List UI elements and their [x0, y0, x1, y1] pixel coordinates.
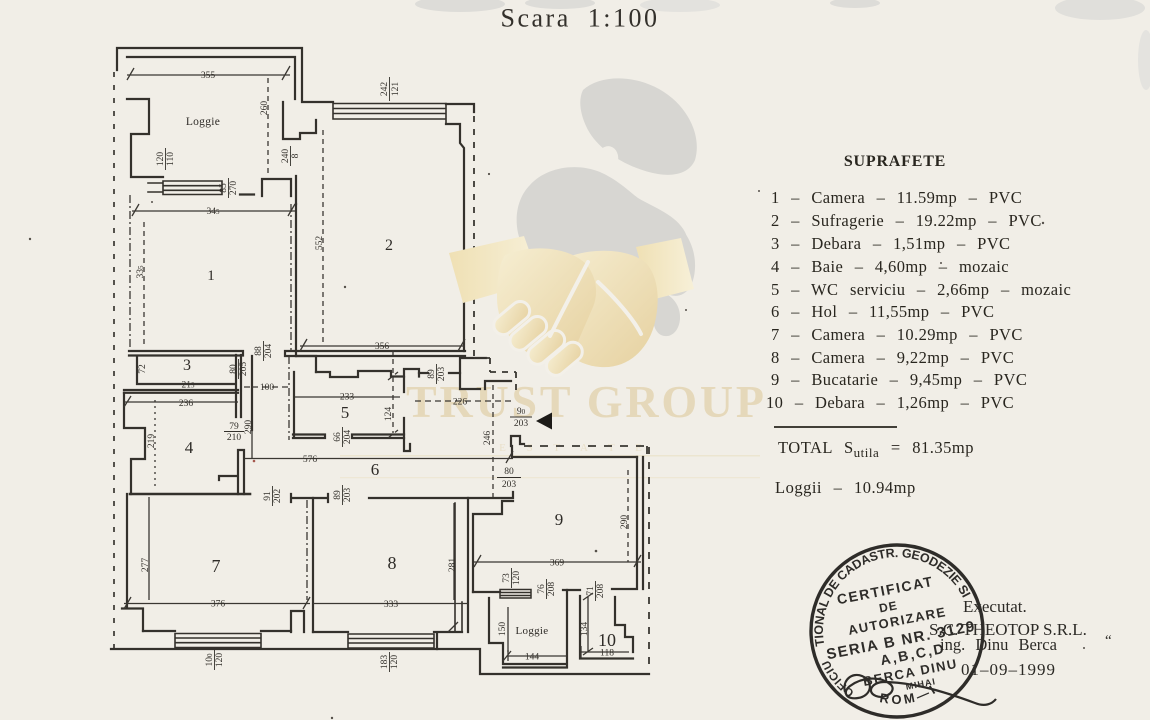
svg-text:89: 89: [333, 490, 343, 500]
svg-text:4 – Baie – 4,60mp – moza: 4 – Baie – 4,60mp – mozaic: [771, 257, 1009, 276]
svg-text:110: 110: [166, 152, 176, 166]
svg-text:80: 80: [229, 364, 239, 374]
svg-text:4: 4: [185, 438, 194, 457]
svg-text:85: 85: [219, 183, 229, 193]
svg-text:150: 150: [498, 622, 508, 637]
svg-text:88: 88: [254, 346, 264, 356]
svg-text:3: 3: [183, 357, 191, 374]
svg-text:Loggie: Loggie: [516, 625, 549, 637]
svg-text:576: 576: [303, 455, 318, 465]
svg-text:203: 203: [502, 480, 517, 490]
svg-text:120: 120: [215, 653, 225, 668]
svg-text:333: 333: [384, 600, 399, 610]
svg-text:8 – Camera – 9,22mp – PV: 8 – Camera – 9,22mp – PVC: [771, 348, 1014, 367]
svg-text:134: 134: [580, 622, 590, 637]
svg-text:79: 79: [229, 422, 239, 432]
svg-text:7 – Camera – 10.29mp – P: 7 – Camera – 10.29mp – PVC: [771, 325, 1023, 344]
svg-text:72: 72: [138, 364, 148, 374]
svg-text:100: 100: [205, 653, 215, 667]
svg-text:124: 124: [384, 407, 394, 422]
svg-text:355: 355: [201, 71, 216, 81]
svg-text:5 – WC serviciu – 2,66mp: 5 – WC serviciu – 2,66mp – mozaic: [771, 280, 1071, 299]
svg-text:Executat.: Executat.: [963, 597, 1027, 616]
svg-text:203: 203: [343, 488, 353, 503]
svg-text:369: 369: [550, 559, 565, 569]
svg-text:277: 277: [141, 558, 151, 573]
svg-text:215: 215: [182, 381, 196, 391]
svg-text:204: 204: [264, 344, 274, 359]
svg-text:240: 240: [281, 149, 291, 164]
svg-text:66: 66: [333, 432, 343, 442]
svg-text:76: 76: [537, 584, 547, 594]
svg-text:376: 376: [211, 600, 226, 610]
svg-text:281: 281: [448, 558, 458, 573]
svg-text:Loggie: Loggie: [186, 116, 220, 128]
svg-text:1 – Camera – 11.59mp – P: 1 – Camera – 11.59mp – PVC: [771, 188, 1022, 207]
svg-text:335: 335: [136, 265, 146, 279]
svg-text:9: 9: [555, 510, 564, 529]
svg-text:236: 236: [179, 399, 194, 409]
svg-text:SUPRAFETE: SUPRAFETE: [844, 153, 946, 170]
svg-text:270: 270: [229, 181, 239, 196]
svg-text:219: 219: [147, 434, 157, 449]
svg-text:203: 203: [437, 367, 447, 382]
svg-text:121: 121: [391, 82, 401, 97]
svg-text:5: 5: [341, 403, 350, 422]
svg-text:90: 90: [517, 407, 526, 417]
svg-text:91: 91: [263, 491, 273, 501]
svg-text:242: 242: [380, 82, 390, 97]
svg-text:144: 144: [525, 653, 540, 663]
svg-text:290: 290: [244, 420, 254, 435]
svg-text:100: 100: [260, 383, 275, 393]
svg-text:205: 205: [239, 362, 249, 377]
svg-text:10: 10: [598, 630, 616, 650]
svg-text:356: 356: [375, 342, 390, 352]
svg-text:3 – Debara – 1,51mp – PV: 3 – Debara – 1,51mp – PVC: [771, 234, 1010, 253]
svg-text:208: 208: [596, 584, 606, 599]
svg-text:120: 120: [156, 152, 166, 167]
svg-text:183: 183: [380, 655, 390, 670]
svg-text:Loggii – 10.94mp: Loggii – 10.94mp: [775, 478, 916, 497]
svg-text:“: “: [1105, 633, 1112, 649]
svg-text:89: 89: [427, 369, 437, 379]
svg-text:202: 202: [273, 489, 283, 504]
svg-text:10 – Debara – 1,26mp – P: 10 – Debara – 1,26mp – PVC: [766, 393, 1014, 412]
svg-text:120: 120: [390, 655, 400, 670]
svg-text:120: 120: [512, 571, 522, 586]
svg-text:8: 8: [388, 553, 397, 573]
svg-text:226: 226: [453, 398, 468, 408]
svg-text:210: 210: [227, 433, 242, 443]
svg-text:118: 118: [600, 649, 614, 659]
svg-text:6: 6: [371, 460, 380, 479]
svg-text:7: 7: [212, 556, 221, 576]
svg-text:8: 8: [291, 153, 301, 158]
svg-text:1: 1: [207, 268, 215, 284]
svg-text:233: 233: [340, 393, 355, 403]
svg-text:9 – Bucatarie – 9,45mp –: 9 – Bucatarie – 9,45mp – PVC: [771, 370, 1027, 389]
svg-text:80: 80: [504, 467, 514, 477]
svg-text:290: 290: [620, 515, 630, 530]
svg-text:71: 71: [586, 586, 596, 596]
svg-text:2: 2: [385, 237, 393, 254]
svg-text:2 – Sufragerie – 19.22mp: 2 – Sufragerie – 19.22mp – PVC: [771, 211, 1042, 230]
svg-text:73: 73: [502, 573, 512, 583]
svg-text:208: 208: [547, 582, 557, 597]
svg-text:203: 203: [514, 419, 529, 429]
svg-text:345: 345: [207, 207, 221, 217]
svg-text:260: 260: [260, 101, 270, 116]
svg-text:552: 552: [315, 236, 325, 251]
svg-text:246: 246: [483, 431, 493, 446]
svg-text:Scara 1:100: Scara 1:100: [501, 4, 660, 33]
svg-text:204: 204: [343, 430, 353, 445]
svg-text:6 – Hol – 11,55mp – PVC: 6 – Hol – 11,55mp – PVC: [771, 302, 994, 321]
